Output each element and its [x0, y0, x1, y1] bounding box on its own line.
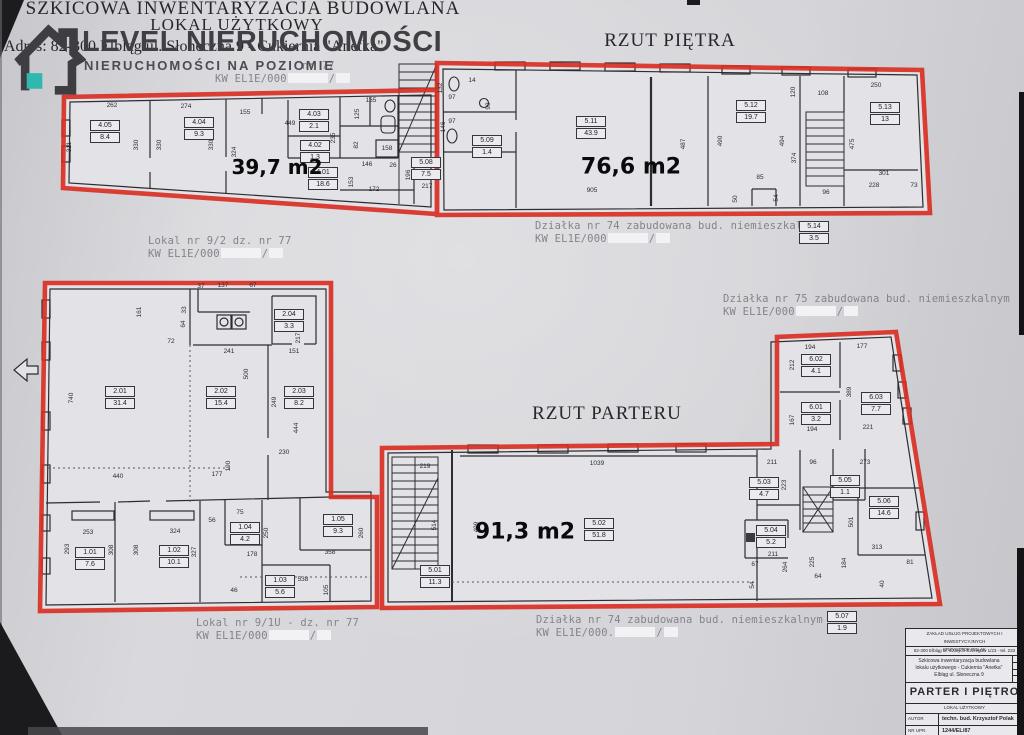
- dimension-label: 1039: [590, 461, 604, 468]
- room-label-1-02: 1.0210.1: [159, 545, 189, 569]
- redacted-patch: [269, 248, 283, 258]
- dimension-label: 108: [818, 91, 829, 98]
- dimension-label: 487: [681, 139, 688, 150]
- kw-number: KW EL1E/000: [215, 73, 287, 85]
- dimension-label: 153: [349, 177, 356, 188]
- dimension-label: 184: [842, 558, 849, 569]
- dimension-label: 96: [822, 190, 829, 197]
- dimension-label: 330: [157, 140, 164, 151]
- redacted-patch: [317, 630, 331, 640]
- watermark-brand: LEVEL NIERUCHOMOŚCI: [82, 26, 442, 59]
- dimension-label: 273: [860, 460, 871, 467]
- room-label-4-03: 4.032.1: [299, 109, 329, 133]
- dimension-label: 146: [441, 122, 448, 133]
- dimension-label: 313: [872, 545, 883, 552]
- room-label-5-07: 5.071.9: [827, 611, 857, 635]
- room-label-5-02: 5.0251.8: [584, 518, 614, 542]
- room-label-5-05: 5.051.1: [830, 475, 860, 499]
- area-label-planB: 76,6 m2: [581, 155, 681, 180]
- watermark-logo: [8, 14, 86, 98]
- room-label-1-05: 1.059.3: [323, 514, 353, 538]
- dimension-label: 158: [382, 146, 393, 153]
- dimension-label: 260: [359, 528, 366, 539]
- kw-number: KW EL1E/000: [148, 248, 220, 260]
- dimension-label: 178: [247, 552, 258, 559]
- dimension-label: 358: [325, 550, 336, 557]
- room-label-2-01: 2.0131.4: [105, 386, 135, 410]
- dimension-label: 211: [767, 460, 777, 467]
- titleblock-subject: Szkicowa inwentaryzacja budowlana lokalu…: [906, 656, 1012, 682]
- note-lokal-9-1u: Lokal nr 9/1U - dz. nr 77: [196, 617, 359, 630]
- redacted-patch: [288, 73, 328, 83]
- kw-line: KW EL1E/000/: [215, 73, 351, 86]
- dimension-label: 46: [230, 588, 237, 595]
- redacted-patch: [656, 233, 670, 243]
- dimension-label: 228: [869, 183, 880, 190]
- dimension-label: 308: [109, 545, 116, 556]
- dimension-label: 64: [814, 574, 821, 581]
- dimension-label: 151: [289, 349, 300, 356]
- dimension-label: 225: [810, 557, 817, 568]
- kw-number: KW EL1E/000: [535, 233, 607, 245]
- kw-slash: /: [837, 306, 844, 318]
- house-logo-icon: [8, 14, 86, 98]
- dimension-label: 54: [774, 194, 781, 201]
- dimension-label: 75: [236, 510, 243, 517]
- dimension-label: 26: [389, 163, 396, 170]
- dimension-label: 217: [296, 333, 303, 344]
- room-label-5-06: 5.0614.6: [869, 496, 899, 520]
- redacted-patch: [796, 306, 836, 316]
- room-label-6-01: 6.013.2: [801, 402, 831, 426]
- dimension-label: 264: [783, 562, 790, 573]
- dimension-label: 249: [272, 397, 279, 408]
- dimension-label: 194: [807, 427, 818, 434]
- kw-slash: /: [329, 73, 336, 85]
- kw-slash: /: [656, 627, 663, 639]
- dimension-label: 40: [880, 580, 887, 587]
- dimension-label: 223: [782, 480, 789, 491]
- scanned-floorplan-document: SZKICOWA INWENTARYZACJA BUDOWLANA LOKAL …: [0, 0, 1024, 735]
- dimension-label: 165: [366, 98, 377, 105]
- kw-number: KW EL1E/000: [196, 630, 268, 642]
- dimension-label: 155: [240, 110, 251, 117]
- dimension-label: 82: [354, 141, 361, 148]
- dimension-label: 37: [197, 284, 204, 291]
- redacted-patch: [269, 630, 309, 640]
- dimension-label: 212: [790, 360, 797, 371]
- dimension-label: 308: [134, 545, 141, 556]
- room-label-4-04: 4.049.3: [184, 117, 214, 141]
- redacted-patch: [221, 248, 261, 258]
- dimension-label: 230: [279, 450, 290, 457]
- dimension-label: 97: [448, 119, 455, 126]
- dimension-label: 56: [208, 518, 215, 525]
- dimension-label: 73: [910, 183, 917, 190]
- titleblock-address: 82-300 Elbląg ul. Szarych Szeregów 1/23 …: [906, 647, 1023, 656]
- dimension-label: 132: [438, 83, 445, 94]
- dimension-label: 161: [137, 307, 144, 318]
- room-label-1-01: 1.017.6: [75, 547, 105, 571]
- dimension-label: 490: [718, 136, 725, 147]
- room-label-5-09: 5.091.4: [472, 135, 502, 159]
- redacted-patch: [336, 73, 350, 83]
- dimension-label: 514: [432, 520, 439, 531]
- dimension-label: 81: [906, 560, 913, 567]
- dimension-label: 301: [879, 171, 890, 178]
- dimension-label: 194: [805, 345, 816, 352]
- redacted-patch: [608, 233, 648, 243]
- dimension-label: 14: [468, 78, 475, 85]
- dimension-label: 250: [871, 83, 882, 90]
- dimension-label: 85: [756, 175, 763, 182]
- dimension-label: 50: [733, 195, 740, 202]
- dimension-label: 330: [209, 140, 216, 151]
- redacted-patch: [615, 627, 655, 637]
- dimension-label: 221: [863, 425, 874, 432]
- room-label-1-03: 1.035.6: [265, 575, 295, 599]
- room-label-5-03: 5.034.7: [749, 477, 779, 501]
- note-dzialka-75-kw: KW EL1E/000/: [723, 306, 859, 319]
- kw-slash: /: [262, 248, 269, 260]
- note-dzialka-75: Działka nr 75 zabudowana bud. niemieszka…: [723, 293, 1010, 306]
- redacted-patch: [664, 627, 678, 637]
- floor-title-upper: RZUT PIĘTRA: [604, 30, 736, 52]
- dimension-label: 475: [850, 139, 857, 150]
- dimension-label: 324: [170, 529, 181, 536]
- room-label-5-04: 5.045.2: [756, 525, 786, 549]
- dimension-label: 33: [182, 306, 189, 313]
- note-lokal-9-2: Lokal nr 9/2 dz. nr 77: [148, 235, 291, 248]
- dimension-label: 54: [750, 581, 757, 588]
- titleblock-side-cells: [1012, 656, 1023, 682]
- room-label-1-04: 1.044.2: [230, 522, 260, 546]
- redacted-patch: [844, 306, 858, 316]
- dimension-label: 449: [285, 121, 296, 128]
- dimension-label: 740: [69, 393, 76, 404]
- area-label-planD: 91,3 m2: [475, 520, 575, 545]
- dimension-label: 274: [181, 104, 192, 111]
- dimension-label: 177: [212, 472, 223, 479]
- kw-number: KW EL1E/000.: [536, 627, 614, 639]
- room-label-6-03: 6.037.7: [861, 392, 891, 416]
- dimension-label: 97: [448, 95, 455, 102]
- entrance-arrow-icon: [14, 359, 38, 381]
- dimension-label: 440: [113, 474, 124, 481]
- dimension-label: 327: [192, 547, 199, 558]
- note-lokal-9-2-kw: KW EL1E/000/: [148, 248, 284, 261]
- titleblock-drawing-type: LOKAL UŻYTKOWY: [906, 704, 1023, 714]
- dimension-label: 330: [134, 140, 141, 151]
- room-label-2-03: 2.038.2: [284, 386, 314, 410]
- dimension-label: 501: [849, 517, 856, 528]
- dimension-label: 311: [67, 142, 74, 152]
- dimension-label: 211: [768, 552, 778, 559]
- titleblock-author-value: techn. bud. Krzysztof Polak: [939, 714, 1023, 725]
- room-label-5-01: 5.0111.3: [420, 565, 450, 589]
- note-dzialka-74-bottom-kw: KW EL1E/000./: [536, 627, 679, 640]
- room-label-4-05: 4.058.4: [90, 120, 120, 144]
- dimension-label: 253: [83, 530, 94, 537]
- dimension-label: 172: [369, 187, 380, 194]
- dimension-label: 137: [218, 283, 229, 290]
- room-label-5-11: 5.1143.9: [576, 116, 606, 140]
- dimension-label: 389: [847, 387, 854, 398]
- area-label-planA: 39,7 m2: [231, 155, 322, 179]
- note-lokal-9-1u-kw: KW EL1E/000/: [196, 630, 332, 643]
- kw-slash: /: [310, 630, 317, 642]
- dimension-label: 500: [244, 369, 251, 380]
- kw-number: KW EL1E/000: [723, 306, 795, 318]
- dimension-label: 67: [249, 283, 256, 290]
- dimension-label: 67: [751, 562, 758, 569]
- dimension-label: 494: [780, 136, 787, 147]
- dimension-label: 96: [809, 460, 816, 467]
- titleblock-nr-value: 1244/EL/87: [939, 726, 1023, 735]
- dimension-label: 105: [324, 585, 331, 596]
- room-label-5-13: 5.1313: [870, 102, 900, 126]
- dimension-label: 538: [298, 577, 309, 584]
- room-label-5-08: 5.087.5: [411, 157, 441, 181]
- dimension-label: 190: [226, 461, 233, 472]
- dimension-label: 241: [224, 349, 235, 356]
- dimension-label: 262: [107, 103, 118, 110]
- titleblock-nr-label: NR UPR. PROJ.: [906, 726, 939, 735]
- dimension-label: 219: [420, 464, 431, 471]
- room-label-5-14: 5.143.5: [799, 221, 829, 245]
- dimension-label: 177: [857, 344, 868, 351]
- dimension-label: 217: [422, 184, 433, 191]
- titleblock-company: ZAKŁAD USŁUG PROJEKTOWYCH I INWESTYCYJNY…: [906, 630, 1023, 646]
- dimension-label: 235: [331, 133, 338, 144]
- note-dzialka-74-bottom: Działka nr 74 zabudowana bud. niemieszka…: [536, 614, 823, 627]
- dimension-label: 293: [65, 544, 72, 555]
- kw-slash: /: [649, 233, 656, 245]
- dimension-label: 374: [792, 153, 799, 164]
- dimension-label: 146: [362, 162, 373, 169]
- watermark-tagline: NIERUCHOMOŚCI NA POZIOMIE: [84, 58, 335, 73]
- room-label-2-02: 2.0215.4: [206, 386, 236, 410]
- dimension-label: 250: [264, 528, 271, 539]
- dimension-label: 93: [486, 102, 493, 109]
- dimension-label: 72: [167, 339, 174, 346]
- dimension-label: 167: [790, 415, 797, 426]
- note-dzialka-74-top: Działka nr 74 zabudowana bud. niemieszka…: [535, 220, 822, 233]
- dimension-label: 64: [181, 320, 188, 327]
- titleblock: ZAKŁAD USŁUG PROJEKTOWYCH I INWESTYCYJNY…: [905, 628, 1024, 735]
- room-label-5-12: 5.1219.7: [736, 100, 766, 124]
- room-label-2-04: 2.043.3: [274, 309, 304, 333]
- note-dzialka-74-top-kw: KW EL1E/000/: [535, 233, 671, 246]
- dimension-label: 444: [294, 423, 301, 434]
- titleblock-drawing-title: PARTER I PIĘTRO: [906, 683, 1023, 704]
- dimension-label: 125: [355, 109, 362, 120]
- room-label-6-02: 6.024.1: [801, 354, 831, 378]
- titleblock-author-label: AUTOR: [906, 714, 939, 725]
- dimension-label: 120: [791, 87, 798, 98]
- dimension-label: 905: [587, 188, 598, 195]
- floor-title-ground: RZUT PARTERU: [532, 403, 682, 425]
